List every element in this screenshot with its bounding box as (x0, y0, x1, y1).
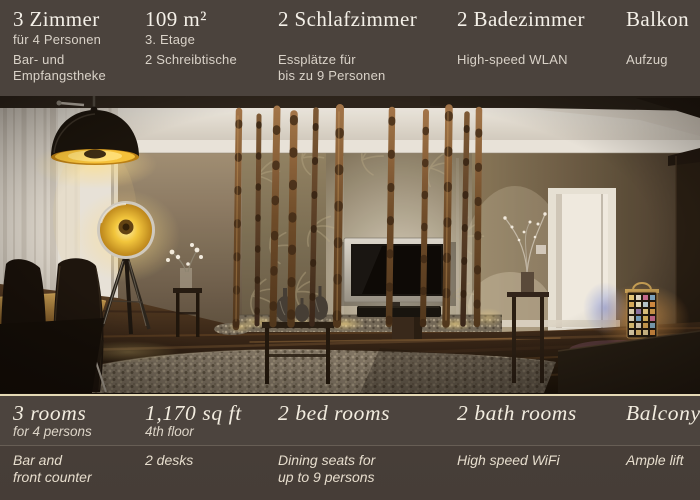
en-rooms-features: Bar and front counter (13, 452, 92, 486)
en-bathrooms-heading: 2 bath rooms (457, 401, 577, 426)
en-bedrooms-heading: 2 bed rooms (278, 401, 390, 426)
de-area-features: 2 Schreibtische (145, 52, 237, 68)
info-bar-english: 3 rooms for 4 persons Bar and front coun… (0, 396, 700, 500)
de-bathrooms-heading: 2 Badezimmer (457, 7, 585, 32)
en-rooms-heading: 3 rooms (13, 401, 86, 426)
de-col-rooms: 3 Zimmer für 4 Personen Bar- und Empfang… (13, 0, 141, 96)
en-balcony-features: Ample lift (626, 452, 684, 469)
en-area-features: 2 desks (145, 452, 193, 469)
en-bathrooms-features: High speed WiFi (457, 452, 560, 469)
de-area-heading: 109 m² (145, 7, 207, 32)
en-balcony-heading: Balcony (626, 401, 700, 426)
apartment-photo (0, 96, 700, 393)
de-rooms-sub: für 4 Personen (13, 32, 101, 47)
en-area-heading: 1,170 sq ft (145, 401, 242, 426)
en-rooms-sub: for 4 persons (13, 424, 92, 439)
de-col-bedrooms: 2 Schlafzimmer Essplätze für bis zu 9 Pe… (278, 0, 454, 96)
en-bedrooms-features: Dining seats for up to 9 persons (278, 452, 375, 486)
apartment-photo-svg (0, 96, 700, 393)
en-col-bedrooms: 2 bed rooms Dining seats for up to 9 per… (278, 396, 454, 500)
vignette (0, 96, 700, 393)
de-bathrooms-features: High-speed WLAN (457, 52, 568, 68)
de-col-bathrooms: 2 Badezimmer High-speed WLAN (457, 0, 623, 96)
en-col-balcony: Balcony Ample lift (626, 396, 698, 500)
de-bedrooms-heading: 2 Schlafzimmer (278, 7, 417, 32)
apartment-listing-card: 3 Zimmer für 4 Personen Bar- und Empfang… (0, 0, 700, 500)
de-balcony-heading: Balkon (626, 7, 689, 32)
en-col-bathrooms: 2 bath rooms High speed WiFi (457, 396, 623, 500)
en-col-rooms: 3 rooms for 4 persons Bar and front coun… (13, 396, 141, 500)
de-area-sub: 3. Etage (145, 32, 195, 47)
de-rooms-heading: 3 Zimmer (13, 7, 100, 32)
info-bar-german: 3 Zimmer für 4 Personen Bar- und Empfang… (0, 0, 700, 96)
de-col-area: 109 m² 3. Etage 2 Schreibtische (145, 0, 275, 96)
en-col-area: 1,170 sq ft 4th floor 2 desks (145, 396, 275, 500)
de-col-balcony: Balkon Aufzug (626, 0, 698, 96)
de-rooms-features: Bar- und Empfangstheke (13, 52, 106, 84)
en-area-sub: 4th floor (145, 424, 194, 439)
de-balcony-features: Aufzug (626, 52, 668, 68)
de-bedrooms-features: Essplätze für bis zu 9 Personen (278, 52, 385, 84)
